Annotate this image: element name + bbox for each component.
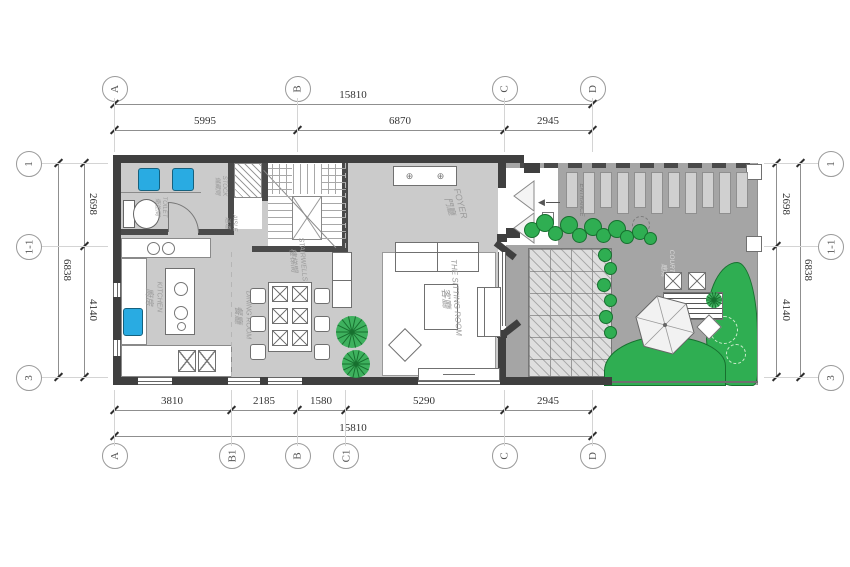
stair-tread <box>268 217 292 218</box>
garden-right-boundary <box>757 163 758 385</box>
window-dining-2 <box>268 377 302 385</box>
stepping-stone <box>736 172 748 208</box>
dim-bottom-seg-3: 1580 <box>310 395 332 407</box>
ext-line <box>42 377 108 378</box>
garden-bottom-boundary <box>612 381 758 383</box>
ext-line <box>345 390 346 446</box>
dining-cabinet <box>332 252 352 308</box>
ext-line <box>592 390 593 446</box>
entry-arrow-line <box>546 202 560 203</box>
stair-tread <box>268 196 292 197</box>
bathroom-door-leaf <box>168 202 169 232</box>
dim-bottom-seg-2: 2185 <box>253 395 275 407</box>
grid-bubble-top-D: D <box>580 76 606 102</box>
entry-arrow-icon: ◀ <box>538 197 545 208</box>
ext-line <box>42 163 108 164</box>
window-left-1 <box>113 283 121 297</box>
dim-line-top-segments <box>114 130 592 131</box>
ext-line <box>764 163 818 164</box>
stepping-stone <box>634 172 646 208</box>
stair-tread <box>307 164 308 194</box>
dining-chair <box>314 316 330 332</box>
stair-tread <box>293 164 294 194</box>
dining-chair <box>314 288 330 304</box>
center-line <box>231 252 232 377</box>
stair-tread <box>268 210 292 211</box>
grid-bubble-top-A: A <box>102 76 128 102</box>
shrub-icon <box>604 294 617 307</box>
plant-icon <box>335 315 369 349</box>
shrub-icon <box>599 310 613 324</box>
ext-line <box>592 98 593 152</box>
dim-bottom-total: 15810 <box>339 422 367 434</box>
plant-icon <box>341 349 371 379</box>
sink-icon <box>138 168 160 191</box>
dim-top-total: 15810 <box>339 89 367 101</box>
stair-tread <box>322 238 346 239</box>
foyer-cabinet: ⊕ ⊕ <box>393 166 457 186</box>
grid-bubble-right-3: 3 <box>818 365 844 391</box>
outdoor-chair <box>664 272 682 290</box>
ext-line <box>114 98 115 152</box>
stepping-stone <box>566 172 578 208</box>
label-aisle: AISLE過道 <box>223 214 237 231</box>
table-panel <box>292 308 308 324</box>
shrub-icon <box>604 262 617 275</box>
dim-left-seg-2: 4140 <box>87 299 99 321</box>
ext-line <box>231 390 232 446</box>
dining-chair <box>250 288 266 304</box>
sink-icon <box>172 168 194 191</box>
grid-bubble-bottom-D: D <box>580 443 606 469</box>
stair-tread <box>328 164 329 194</box>
dim-top-seg-1: 5995 <box>194 115 216 127</box>
stair-tread <box>268 224 292 225</box>
dim-line-right-segments <box>776 163 777 377</box>
dim-line-bottom-total <box>114 436 592 437</box>
grid-bubble-top-B: B <box>285 76 311 102</box>
garden-top-boundary <box>520 163 758 168</box>
dim-bottom-seg-1: 3810 <box>161 395 183 407</box>
dim-line-left-segments <box>84 163 85 377</box>
stair-tread <box>268 203 292 204</box>
ext-line <box>764 246 818 247</box>
stair-tread <box>322 189 346 190</box>
dim-right-seg-1: 2698 <box>780 193 792 215</box>
window-dining-1 <box>228 377 260 385</box>
grid-bubble-left-1: 1 <box>16 151 42 177</box>
stepping-stone <box>617 172 629 214</box>
ext-line <box>764 377 818 378</box>
stair-tread <box>322 224 346 225</box>
stair-tread <box>322 210 346 211</box>
grid-bubble-right-1-1: 1-1 <box>818 234 844 260</box>
fridge-icon <box>198 350 216 372</box>
tv-console <box>418 368 500 381</box>
table-panel <box>292 286 308 302</box>
dim-line-right-total <box>800 163 801 377</box>
wall-right-upper <box>498 155 506 188</box>
floor-plan-canvas: 15810 5995 6870 2945 A B C D 3810 2185 1… <box>0 0 850 567</box>
shrub-icon <box>597 278 611 292</box>
dim-bottom-seg-4: 5290 <box>413 395 435 407</box>
cooktop-burner-icon <box>162 242 175 255</box>
stepping-stone <box>583 172 595 214</box>
stair-tread <box>279 164 280 194</box>
label-stock: STOCK儲藏間 <box>213 176 227 197</box>
dining-chair <box>314 344 330 360</box>
stair-tread <box>314 164 315 194</box>
stair-tread <box>268 238 292 239</box>
grid-bubble-bottom-B: B <box>285 443 311 469</box>
table-panel <box>272 330 288 346</box>
grid-bubble-bottom-A: A <box>102 443 128 469</box>
grid-bubble-bottom-C1: C1 <box>333 443 359 469</box>
vanity-counter-line <box>121 192 201 193</box>
ext-line <box>504 98 505 152</box>
dim-top-seg-2: 6870 <box>389 115 411 127</box>
grid-bubble-right-1: 1 <box>818 151 844 177</box>
wall-bathroom-bottom-left <box>121 229 168 235</box>
dim-line-left-total <box>58 163 59 377</box>
boundary-column <box>746 236 762 252</box>
table-panel <box>292 330 308 346</box>
shrub-icon <box>598 248 612 262</box>
ext-line <box>297 98 298 152</box>
table-panel <box>272 286 288 302</box>
stair-tread <box>268 231 292 232</box>
stair-tread <box>335 164 336 194</box>
dim-left-seg-1: 2698 <box>87 193 99 215</box>
closet-shelf-hatch <box>234 163 262 198</box>
fridge-icon <box>178 350 196 372</box>
stair-tread <box>322 168 346 169</box>
grid-bubble-top-C: C <box>492 76 518 102</box>
stair-tread <box>322 196 346 197</box>
label-toilet: TOILET衛生間 <box>153 197 167 218</box>
dim-left-total: 6838 <box>61 259 73 281</box>
stair-tread <box>322 203 346 204</box>
dim-line-bottom-segments <box>114 410 592 411</box>
dining-chair <box>250 344 266 360</box>
dining-chair <box>250 316 266 332</box>
stair-tread <box>321 164 322 194</box>
burner-icon <box>174 306 188 320</box>
parasol-icon <box>634 294 696 356</box>
dim-right-seg-2: 4140 <box>780 299 792 321</box>
stair-tread <box>322 217 346 218</box>
label-dining-room: DINING ROOM餐廳 <box>232 291 251 339</box>
small-burner-icon <box>177 322 186 331</box>
stair-tread <box>286 164 287 194</box>
shrub-icon <box>604 326 617 339</box>
stepping-stone <box>600 172 612 208</box>
stepping-stone <box>719 172 731 214</box>
stair-tread <box>322 175 346 176</box>
kitchen-sink-icon <box>123 308 143 336</box>
garden-bush-icon <box>726 344 746 364</box>
dim-top-seg-3: 2945 <box>537 115 559 127</box>
ext-line <box>504 390 505 446</box>
stepping-stone <box>702 172 714 208</box>
window-kitchen <box>138 377 172 385</box>
cabinet-handle-icon: ⊕ <box>406 171 414 182</box>
stair-tread <box>300 164 301 194</box>
ext-line <box>42 246 108 247</box>
grid-bubble-left-1-1: 1-1 <box>16 234 42 260</box>
armchair <box>477 287 501 337</box>
grid-bubble-bottom-C: C <box>492 443 518 469</box>
ext-line <box>297 390 298 446</box>
stepping-stone <box>668 172 680 208</box>
label-kitchen: KITCHEN廚房 <box>143 282 162 313</box>
table-panel <box>272 308 288 324</box>
stair-tread <box>322 182 346 183</box>
boundary-column <box>746 164 762 180</box>
dim-line-top-total <box>114 104 592 105</box>
stair-tread <box>272 164 273 194</box>
ext-line <box>114 390 115 446</box>
cooktop-burner-icon <box>147 242 160 255</box>
burner-icon <box>174 282 188 296</box>
stepping-stone <box>651 172 663 214</box>
cabinet-handle-icon: ⊕ <box>437 171 445 182</box>
grid-bubble-bottom-B1: B1 <box>219 443 245 469</box>
window-left-2 <box>113 340 121 356</box>
stair-tread <box>322 231 346 232</box>
dim-right-total: 6838 <box>802 259 814 281</box>
dim-bottom-seg-5: 2945 <box>537 395 559 407</box>
stepping-stone <box>685 172 697 214</box>
plant-icon <box>705 291 723 309</box>
label-stairwell: STAIRWELLS樓梯間 <box>286 237 308 282</box>
wall-top <box>113 155 524 163</box>
grid-bubble-left-3: 3 <box>16 365 42 391</box>
shrub-icon <box>644 232 657 245</box>
outdoor-chair <box>688 272 706 290</box>
wall-stub-vestibule-top <box>524 163 540 173</box>
center-line <box>345 163 346 248</box>
